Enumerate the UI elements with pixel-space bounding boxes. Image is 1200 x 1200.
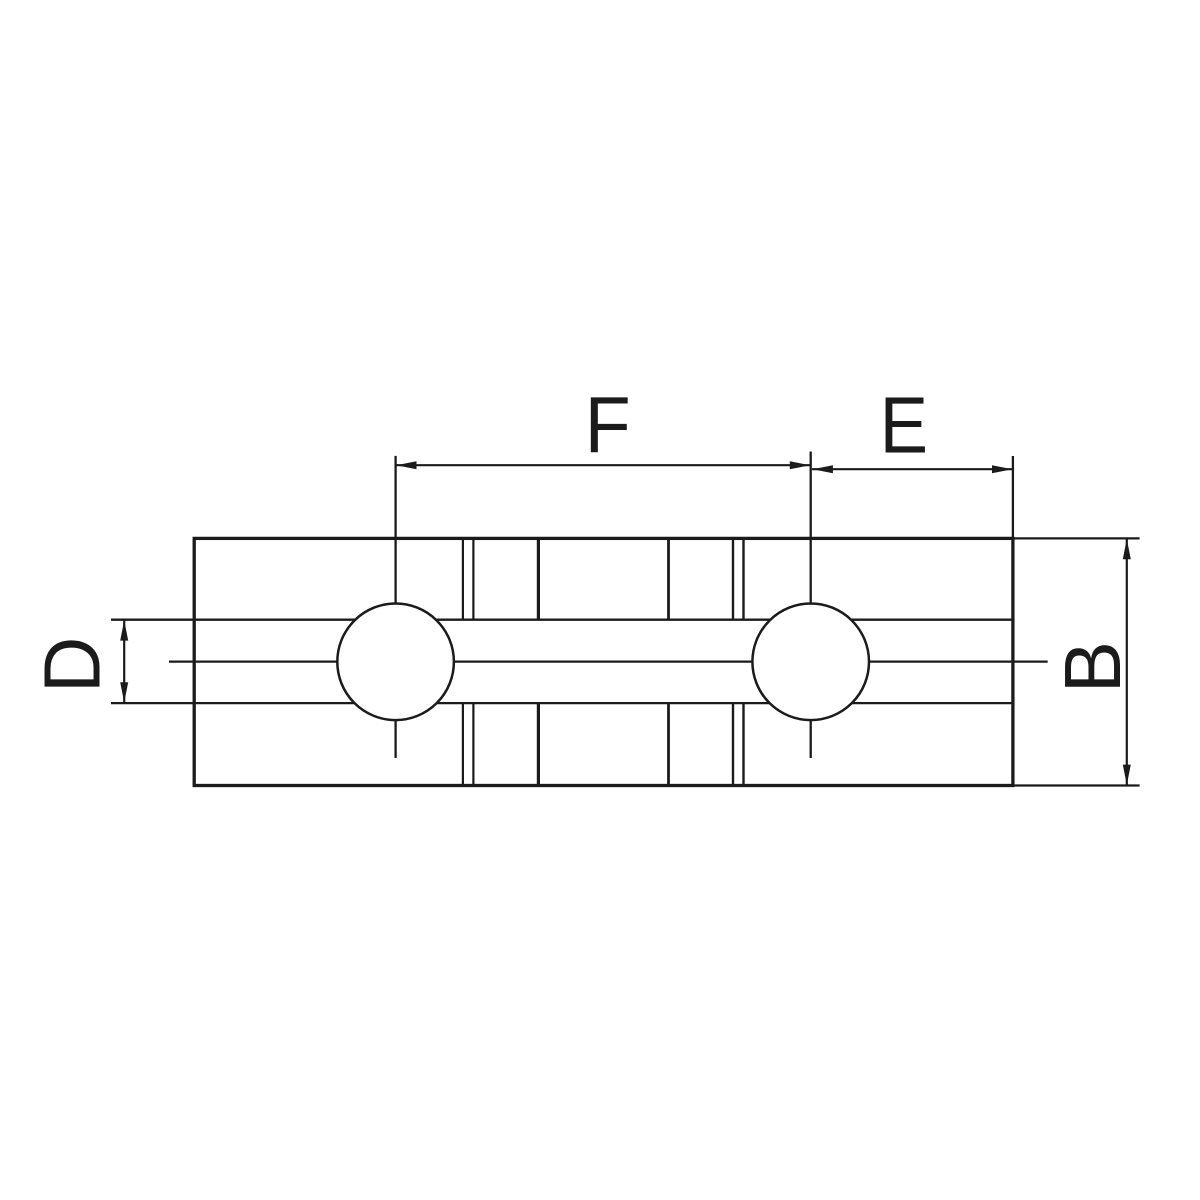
svg-text:D: D (26, 637, 116, 693)
svg-text:B: B (1047, 641, 1137, 693)
svg-text:E: E (880, 381, 928, 470)
svg-text:F: F (585, 381, 631, 469)
